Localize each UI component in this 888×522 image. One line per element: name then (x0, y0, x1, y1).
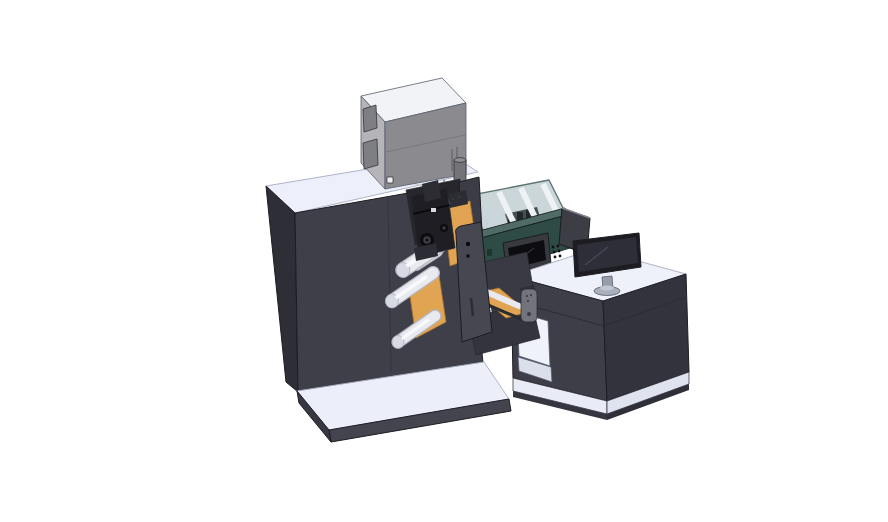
cad-render-stage (0, 0, 888, 522)
pendant-hole (527, 312, 531, 316)
swing-plate-hole (466, 254, 470, 258)
pendant-body (521, 289, 537, 322)
box-window-upper (363, 105, 377, 132)
pendant-led (530, 294, 532, 296)
mechanism-speck (431, 208, 436, 212)
pendant-led (526, 295, 528, 297)
bracket-bolt (458, 196, 460, 198)
hand-pendant (520, 285, 537, 322)
hmi-button (552, 246, 555, 249)
cad-viewport (0, 0, 888, 522)
pendant-led (527, 300, 529, 302)
box-label-tag (387, 177, 393, 183)
hmi-button (553, 251, 556, 254)
hmi-button (559, 255, 562, 258)
idler-ring (442, 226, 446, 230)
swing-plate-hole (466, 242, 470, 246)
monitor-stand-base-top (600, 286, 614, 291)
gear-hub (426, 239, 429, 242)
electrical-enclosure-box (361, 78, 467, 189)
hmi-button (558, 250, 561, 253)
print-unit-hinge (487, 249, 492, 256)
mechanism-arm (422, 180, 441, 202)
hmi-button (554, 256, 557, 259)
box-window-lower (363, 139, 378, 169)
vent-cylinder-top (454, 158, 466, 163)
hmi-button (557, 245, 560, 248)
bracket-bolt (452, 198, 454, 200)
